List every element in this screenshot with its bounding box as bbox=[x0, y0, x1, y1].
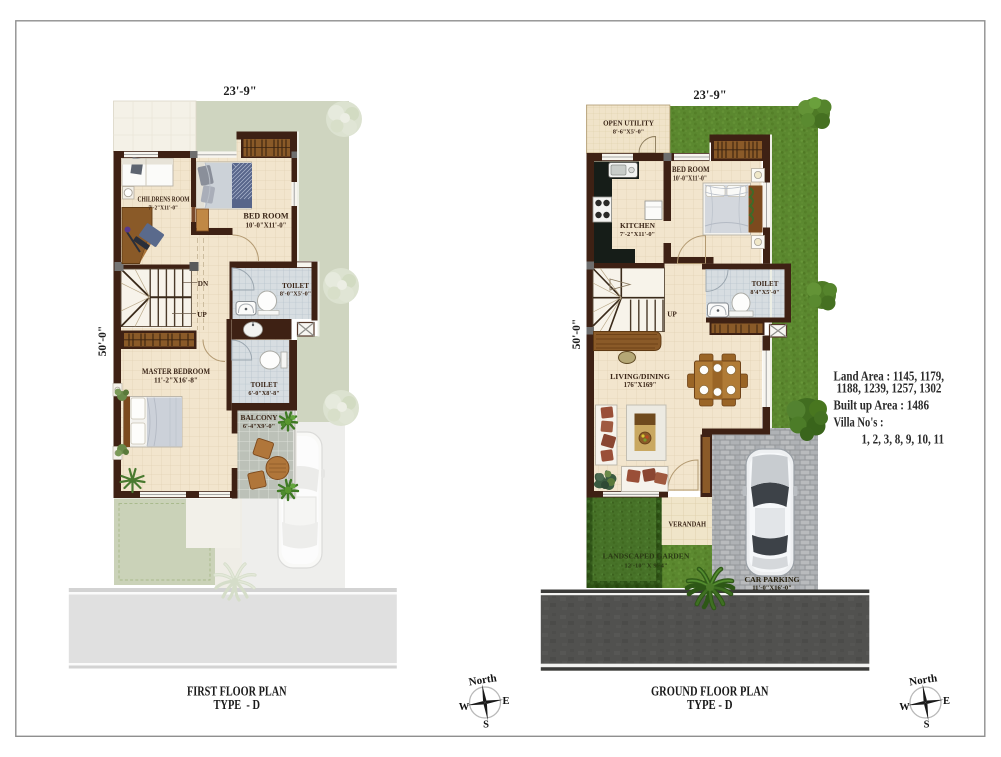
svg-text:UP: UP bbox=[197, 311, 207, 319]
svg-text:LIVING/DINING: LIVING/DINING bbox=[610, 372, 670, 381]
svg-text:8'4"X5'-0": 8'4"X5'-0" bbox=[750, 289, 779, 296]
svg-text:BALCONY: BALCONY bbox=[241, 413, 279, 422]
svg-text:TYPE - D: TYPE - D bbox=[687, 697, 733, 712]
svg-text:176"X169": 176"X169" bbox=[624, 382, 657, 389]
svg-text:11'-2"X16'-8": 11'-2"X16'-8" bbox=[154, 378, 198, 385]
svg-text:BED ROOM: BED ROOM bbox=[243, 212, 289, 221]
svg-text:W: W bbox=[899, 702, 910, 713]
svg-text:8'-6"X5'-0": 8'-6"X5'-0" bbox=[613, 129, 644, 136]
svg-text:BED ROOM: BED ROOM bbox=[672, 165, 710, 174]
svg-text:TYPE - D: TYPE - D bbox=[214, 697, 261, 712]
svg-text:S: S bbox=[924, 720, 930, 731]
svg-text:Built up Area : 1486: Built up Area : 1486 bbox=[834, 399, 930, 414]
svg-text:23'-9": 23'-9" bbox=[693, 88, 726, 102]
svg-text:TOILET: TOILET bbox=[251, 381, 278, 389]
svg-text:W: W bbox=[459, 702, 470, 713]
svg-text:1188, 1239, 1257, 1302: 1188, 1239, 1257, 1302 bbox=[837, 382, 942, 397]
svg-text:OPEN UTILITY: OPEN UTILITY bbox=[603, 120, 654, 128]
svg-text:VERANDAH: VERANDAH bbox=[669, 521, 707, 529]
svg-text:6'-4"X9'-0": 6'-4"X9'-0" bbox=[243, 423, 275, 430]
svg-text:7'-2"X11'-0": 7'-2"X11'-0" bbox=[149, 205, 179, 212]
svg-text:TOILET: TOILET bbox=[752, 280, 779, 288]
svg-text:S: S bbox=[483, 720, 489, 731]
svg-text:50'-0": 50'-0" bbox=[571, 319, 583, 350]
svg-text:1, 2, 3, 8, 9, 10, 11: 1, 2, 3, 8, 9, 10, 11 bbox=[862, 433, 945, 448]
svg-text:DN: DN bbox=[198, 280, 209, 288]
svg-text:50'-0": 50'-0" bbox=[97, 326, 109, 357]
svg-text:LANDSCAPED GARDEN: LANDSCAPED GARDEN bbox=[603, 552, 690, 561]
svg-text:TOILET: TOILET bbox=[282, 282, 309, 290]
svg-text:7'-2"X11'-0": 7'-2"X11'-0" bbox=[620, 231, 655, 238]
svg-text:23'-9": 23'-9" bbox=[223, 84, 256, 98]
svg-text:6'-0"X8'-8": 6'-0"X8'-8" bbox=[248, 390, 279, 397]
svg-text:10'-0"X11'-0": 10'-0"X11'-0" bbox=[246, 223, 287, 230]
svg-text:UP: UP bbox=[667, 311, 677, 319]
svg-text:MASTER BEDROOM: MASTER BEDROOM bbox=[142, 367, 210, 376]
svg-text:8'-0"X5'-0": 8'-0"X5'-0" bbox=[280, 291, 311, 298]
svg-text:12'-10" X 9'-4": 12'-10" X 9'-4" bbox=[624, 563, 667, 570]
svg-text:KITCHEN: KITCHEN bbox=[620, 221, 656, 230]
svg-text:Villa No's :: Villa No's : bbox=[834, 416, 884, 431]
svg-text:CHILDRENS ROOM: CHILDRENS ROOM bbox=[138, 195, 190, 204]
svg-text:10'-0"X11'-0": 10'-0"X11'-0" bbox=[673, 176, 707, 183]
svg-text:E: E bbox=[502, 696, 509, 707]
svg-text:E: E bbox=[943, 696, 950, 707]
